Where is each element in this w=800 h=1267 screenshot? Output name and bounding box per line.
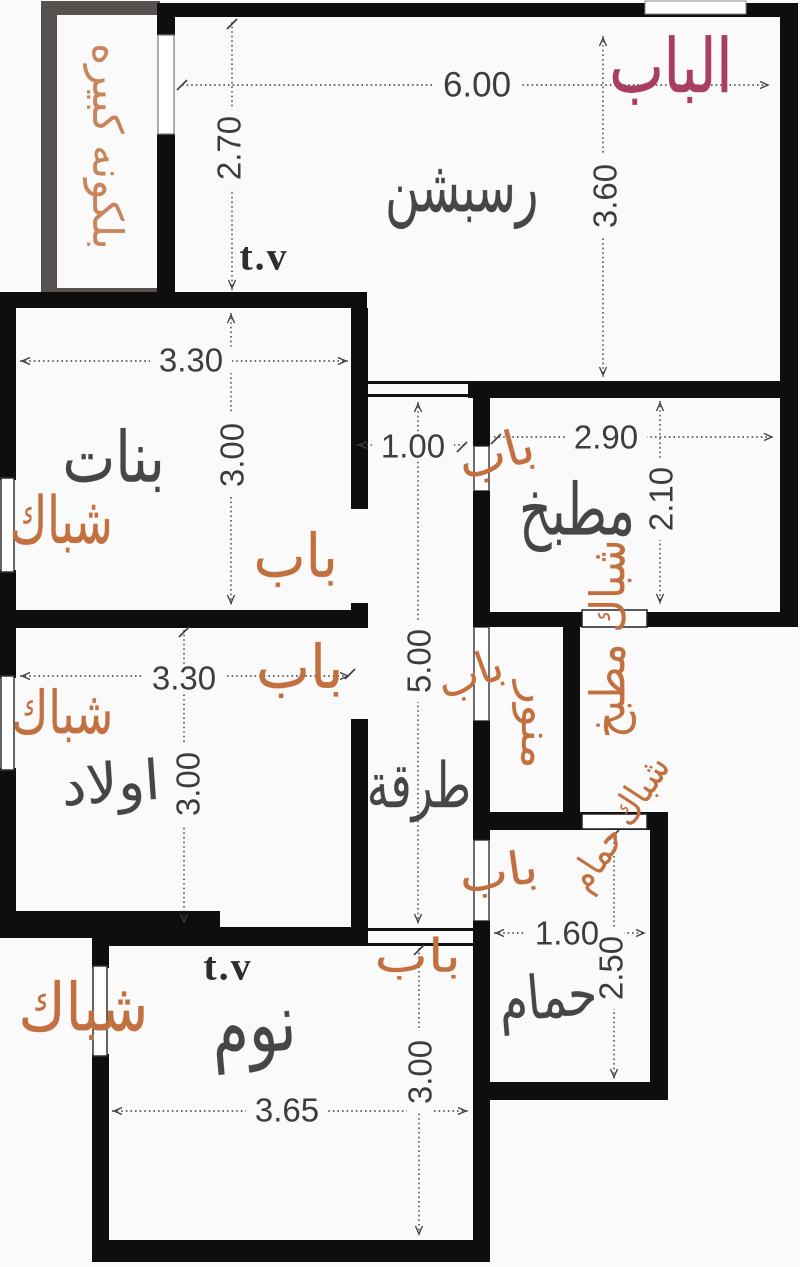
svg-text:3.00: 3.00	[214, 423, 251, 487]
svg-text:t.v: t.v	[239, 234, 288, 279]
svg-text:t.v: t.v	[203, 944, 252, 989]
svg-text:6.00: 6.00	[443, 66, 511, 105]
svg-text:2.70: 2.70	[211, 116, 248, 180]
svg-text:3.30: 3.30	[159, 342, 223, 379]
svg-text:3.00: 3.00	[402, 1040, 439, 1104]
svg-text:3.60: 3.60	[587, 164, 624, 228]
svg-text:2.10: 2.10	[643, 467, 680, 531]
svg-text:3.30: 3.30	[152, 660, 216, 697]
svg-text:1.60: 1.60	[535, 915, 599, 952]
svg-text:1.00: 1.00	[381, 428, 445, 465]
svg-text:2.50: 2.50	[593, 936, 630, 1000]
svg-text:2.90: 2.90	[574, 419, 638, 456]
svg-text:3.00: 3.00	[170, 752, 207, 816]
svg-text:3.65: 3.65	[255, 1092, 319, 1129]
svg-text:5.00: 5.00	[401, 629, 438, 693]
